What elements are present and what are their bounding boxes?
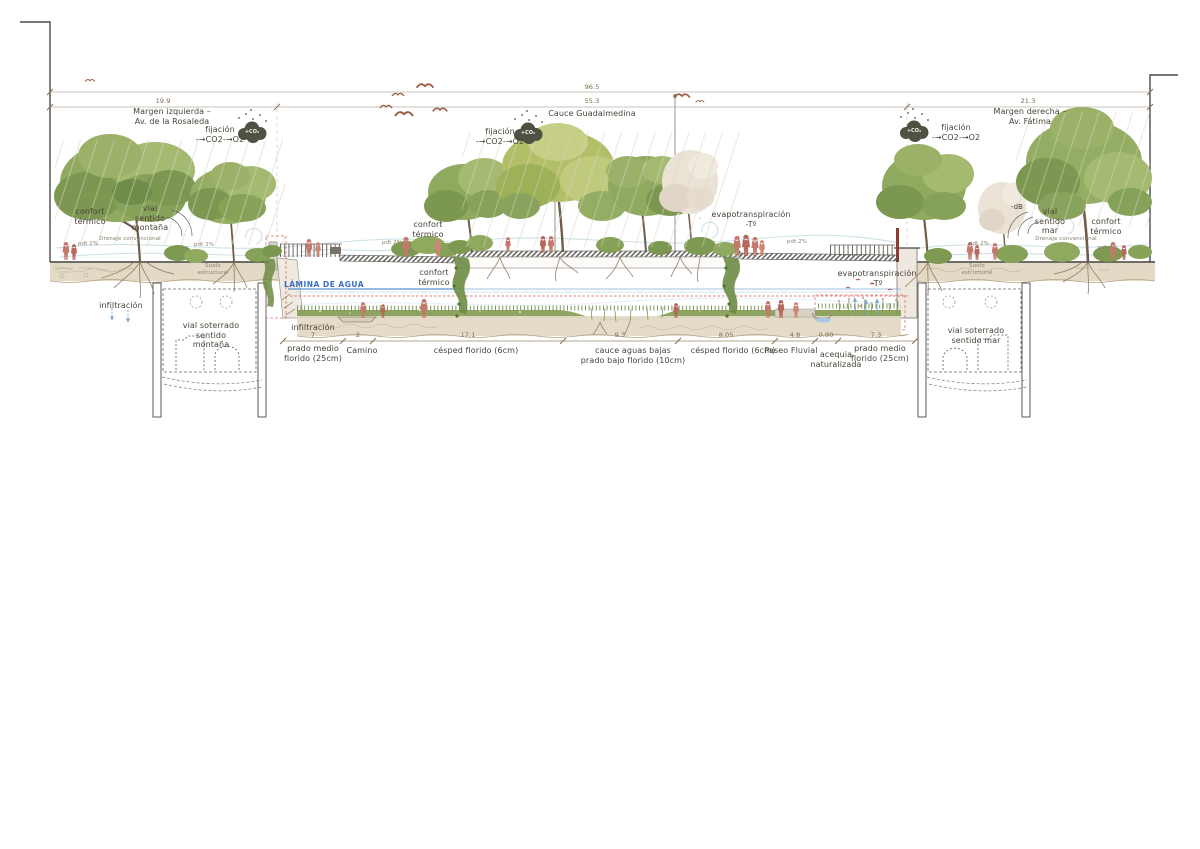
section-drawing-page: 96.519.955.321.3Cauce GuadalmedinaMargen… [0,0,1200,849]
section-drawing [0,0,1200,849]
co2-cloud-icon [900,108,929,142]
tunnel-left [153,283,266,417]
bird-icon [433,108,447,111]
birds [85,80,704,116]
dimension-line-bottom [280,338,918,344]
bird-icon [85,80,95,82]
bird-icon [417,84,434,88]
butterfly-icons [846,279,892,290]
bird-icon [392,93,404,96]
co2-cloud-icon [514,110,543,144]
infiltration-arrows [112,308,128,322]
tunnel-right [918,283,1030,417]
person-icon [306,239,313,257]
bird-icon [380,105,392,108]
person-icon [974,245,980,260]
bird-icon [395,112,413,116]
person-icon [1121,245,1127,260]
bird-icon [696,101,704,103]
co2-cloud-icon [238,109,267,143]
